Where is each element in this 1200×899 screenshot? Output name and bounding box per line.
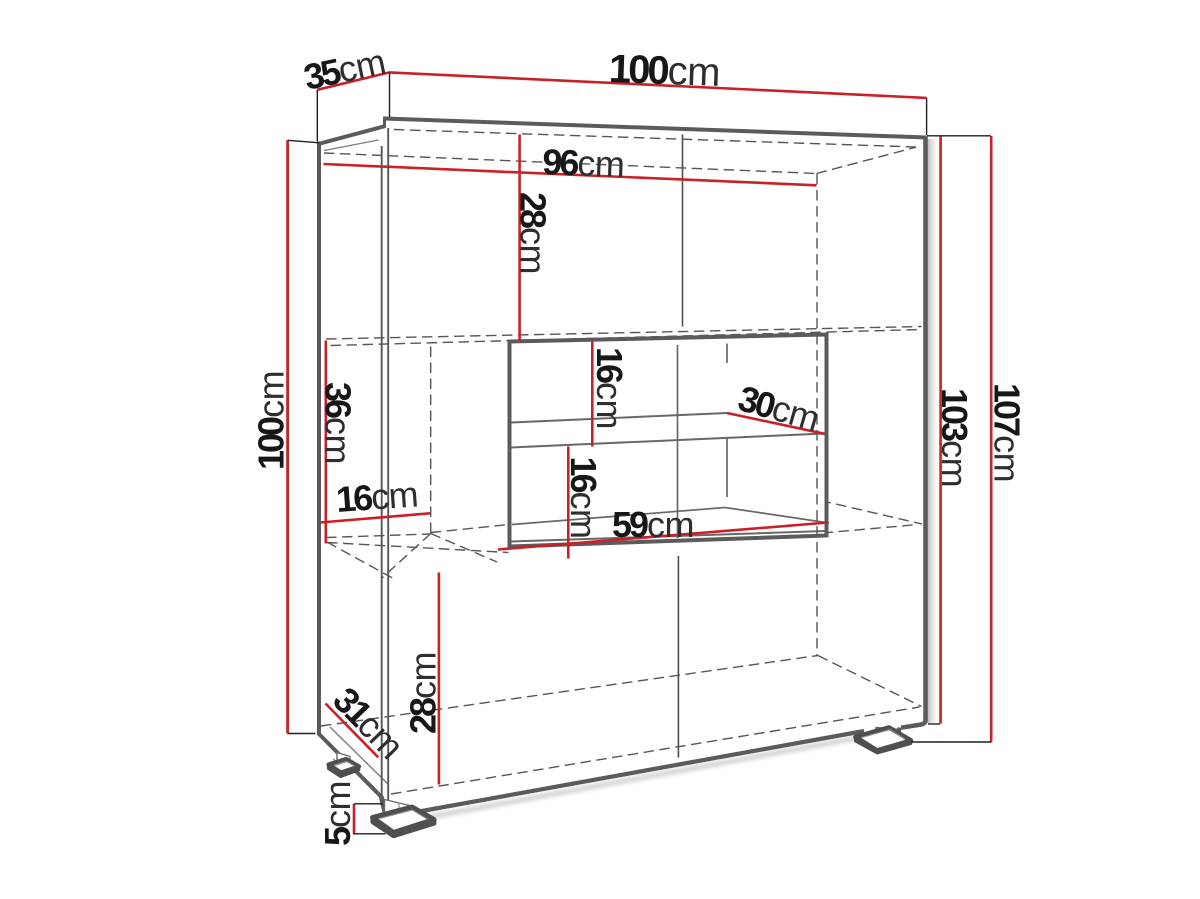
svg-text:107cm: 107cm (987, 383, 1028, 482)
svg-text:16cm: 16cm (563, 457, 604, 539)
svg-text:59cm: 59cm (612, 504, 694, 545)
svg-text:16cm: 16cm (335, 473, 420, 520)
svg-text:35cm: 35cm (300, 41, 389, 98)
svg-text:103cm: 103cm (934, 388, 975, 487)
svg-text:100cm: 100cm (608, 47, 721, 95)
svg-text:28cm: 28cm (513, 192, 554, 274)
svg-text:28cm: 28cm (403, 652, 444, 734)
svg-text:36cm: 36cm (318, 382, 359, 464)
svg-text:5cm: 5cm (317, 781, 358, 846)
svg-text:16cm: 16cm (589, 347, 630, 429)
svg-text:100cm: 100cm (251, 371, 292, 470)
svg-text:96cm: 96cm (542, 141, 625, 185)
